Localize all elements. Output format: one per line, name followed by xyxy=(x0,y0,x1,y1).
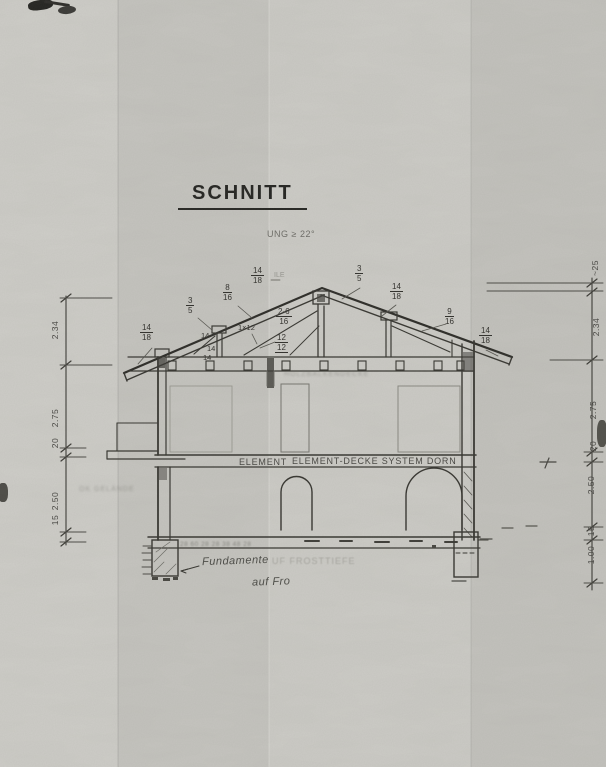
balcony xyxy=(107,423,185,459)
foundation-note-line2: auf Fro xyxy=(252,575,291,588)
dimension-label: 2.34 xyxy=(50,315,60,345)
timber-width-label: 14 xyxy=(207,344,215,353)
dimension-label: ~25 xyxy=(590,253,600,283)
frost-depth-faint-text: UF FROSTTIEFE xyxy=(272,556,356,566)
roof-truss xyxy=(194,291,452,357)
timber-size-label: 35 xyxy=(186,296,194,315)
timber-size-label: 2-616 xyxy=(276,307,292,326)
scanned-section-drawing-sheet: SCHNITT UNG ≥ 22° ILE 1418 35 816 1418 3… xyxy=(0,0,606,767)
dimension-label: 1.00 xyxy=(586,540,596,570)
timber-width-label: 14 xyxy=(203,353,211,362)
foundation-note-line1: Fundamente xyxy=(202,554,269,568)
dimension-chain-left xyxy=(60,294,112,546)
arched-openings xyxy=(281,468,462,530)
dimension-label: 20 xyxy=(50,428,60,458)
timber-size-label: 1418 xyxy=(251,266,264,285)
drawing-title: SCHNITT xyxy=(178,182,307,210)
dimension-label: 20 xyxy=(588,431,598,461)
dimension-label: 15 xyxy=(50,505,60,535)
floor-system-label-left: ELEMENT xyxy=(239,457,287,467)
ground-floor-walls xyxy=(158,467,472,540)
timber-size-label: 1418 xyxy=(479,326,492,345)
timber-size-label: 1418 xyxy=(390,282,403,301)
dimension-label: 2.50 xyxy=(586,470,596,500)
footing-dimension-numbers: 28 60 28 28 38 48 28 xyxy=(180,541,251,548)
dimension-label: 2.34 xyxy=(591,312,601,342)
roof-pitch-note: UNG ≥ 22° xyxy=(267,229,315,239)
timber-size-label: 816 xyxy=(223,283,232,302)
upper-floor-openings xyxy=(170,384,460,452)
section-linework xyxy=(0,0,606,767)
apex-note-fragment: ILE xyxy=(274,272,285,279)
timber-width-label: 14 xyxy=(201,331,209,340)
floor-system-label: ELEMENT-DECKE SYSTEM DORN xyxy=(292,456,457,466)
timber-size-label: 1418 xyxy=(140,323,153,342)
right-footing xyxy=(452,532,492,581)
board-size-label: 1×12 xyxy=(238,323,255,332)
timber-size-label: 916 xyxy=(445,307,454,326)
terrain-faint-text: OK GELÄNDE xyxy=(79,486,135,493)
timber-size-label: 1212 xyxy=(275,333,288,353)
dimension-label: 2.75 xyxy=(588,395,598,425)
attic-ceiling-faint-text: HOLZBALKENDECKE xyxy=(284,371,369,378)
timber-size-label: 35 xyxy=(355,264,363,283)
